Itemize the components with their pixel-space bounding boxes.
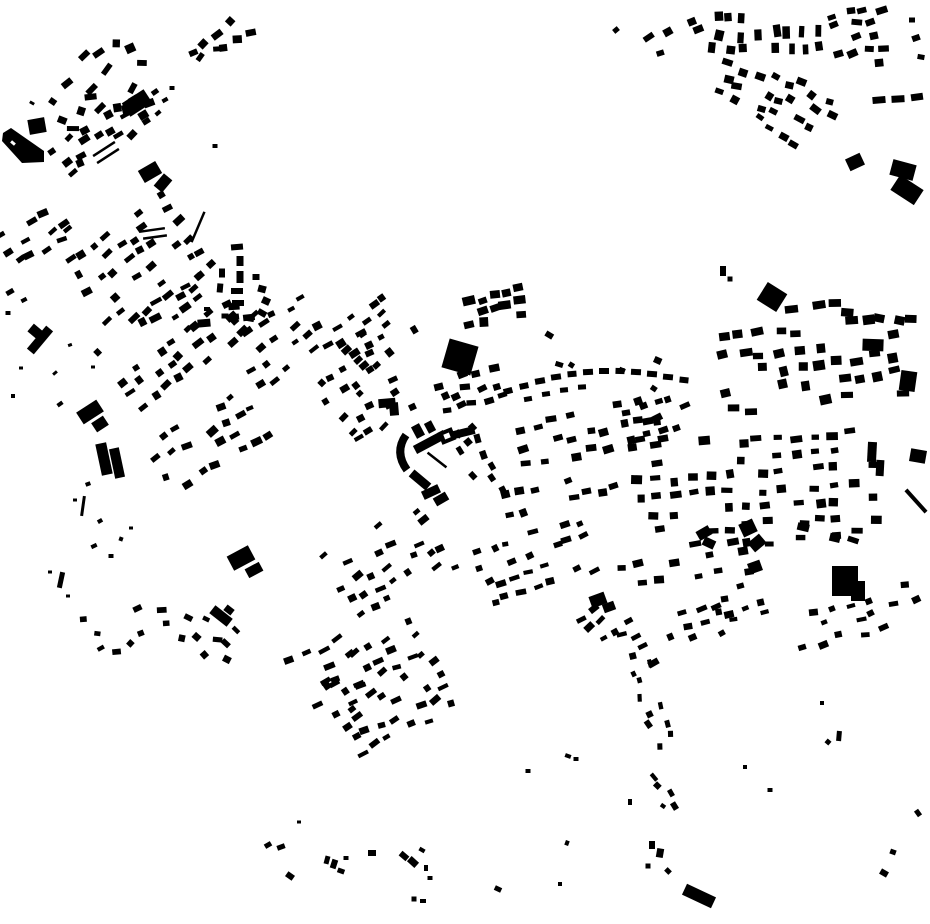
building [181,441,193,450]
building [737,32,744,43]
building [600,635,608,642]
building [846,7,855,14]
building [785,94,796,105]
building [662,26,673,37]
building [909,18,915,23]
building [815,515,825,522]
building [91,416,109,433]
building [725,527,735,534]
building [698,436,710,446]
building [911,93,924,102]
building [245,562,264,578]
building [369,738,381,749]
building [411,423,425,439]
building [566,436,577,444]
building [636,677,642,684]
building [347,593,357,603]
building [95,442,112,476]
building [633,416,643,424]
building [339,412,349,422]
building [578,531,589,540]
building [521,460,531,466]
building [429,694,441,706]
building [103,109,114,120]
building [229,313,240,320]
building [624,617,634,625]
building [390,387,400,397]
building [677,609,687,616]
building [891,95,904,103]
building [409,469,432,490]
building [154,110,161,117]
building [463,320,474,329]
building [553,434,564,442]
building [182,362,194,373]
building [377,309,386,318]
building [741,605,749,612]
building [312,700,324,709]
building [756,598,764,606]
building [811,448,819,454]
building [202,616,210,623]
building [463,437,473,447]
building [163,620,170,626]
building [731,82,742,90]
building [707,471,717,480]
building [612,400,622,408]
building [812,435,820,440]
building [451,392,461,402]
building [319,551,328,559]
building [644,719,653,729]
building [245,28,256,36]
building [347,313,355,321]
building [705,551,714,558]
building [670,490,682,498]
building [385,540,397,549]
building [682,884,716,908]
building [773,348,785,359]
building [688,473,698,480]
building [187,253,195,261]
building [827,110,839,121]
building [738,518,758,537]
building [269,376,280,386]
building [102,248,113,259]
building [732,329,743,338]
building [363,426,373,436]
building [824,738,831,745]
building [337,867,345,874]
building [571,452,582,461]
building [720,388,731,398]
building [774,435,782,440]
building [857,7,867,15]
building [356,414,366,423]
building [471,370,481,378]
building [170,424,180,432]
building [753,353,763,360]
building [109,554,114,558]
building [850,357,864,367]
building [222,314,229,319]
building [145,261,157,272]
building [167,447,176,456]
building [516,311,526,318]
building [564,840,569,846]
building [170,86,175,90]
building [479,450,488,460]
building [876,460,885,476]
building [559,520,570,529]
building [389,715,400,725]
building [905,315,917,323]
building [416,700,428,709]
building [845,153,865,172]
building [617,565,625,571]
building [726,469,735,479]
building [839,373,852,382]
building [568,361,575,368]
building [128,312,141,325]
building [792,450,803,460]
building [75,249,86,260]
building [540,562,549,568]
building [566,411,575,419]
building [143,234,167,240]
building [338,365,346,373]
building [864,597,872,605]
building [79,125,90,136]
building [861,632,870,637]
building [841,392,853,398]
building [374,521,383,529]
building [598,488,608,497]
building [375,585,387,593]
building [801,381,811,392]
building [456,446,465,456]
building [126,639,135,648]
building [157,607,167,613]
building [524,396,533,402]
building [642,430,650,437]
building [127,82,137,94]
building [26,216,38,226]
building [330,859,338,869]
building [572,564,581,572]
building [52,370,58,376]
building [179,301,192,313]
building [650,773,659,782]
building [217,283,224,292]
building [490,290,501,299]
building [645,710,653,718]
building [771,72,781,81]
building [657,743,662,750]
building [721,58,733,67]
building [763,517,773,524]
building [370,602,380,611]
building [784,305,798,314]
building [790,330,801,337]
building [816,343,826,353]
building [235,410,247,420]
building [57,572,65,589]
building [94,631,101,636]
building [651,459,663,467]
building [124,42,136,54]
building [897,390,909,396]
building [157,279,166,287]
building [80,496,86,516]
building [668,731,673,737]
building [183,613,193,622]
building [451,564,459,571]
building [851,581,865,601]
building-footprints-canvas [0,0,930,924]
building [134,209,144,218]
building [290,321,301,332]
building [232,300,244,306]
building [413,508,421,516]
building [325,374,334,382]
building [772,452,781,458]
building [221,418,230,427]
building [200,650,210,660]
building [818,640,829,650]
building [456,400,467,409]
building [459,383,470,390]
building [729,94,740,105]
building [99,231,110,242]
building [132,604,142,613]
building [359,590,369,600]
building [408,403,417,412]
building [364,349,374,358]
building [851,32,862,41]
building [827,14,836,21]
building [803,44,809,54]
building [745,408,757,415]
building [90,543,97,549]
building [134,375,144,385]
building [867,442,877,462]
building [75,158,84,168]
building [377,667,388,677]
building [739,44,747,53]
building [475,565,483,573]
building [145,238,156,249]
building [168,360,178,369]
building [472,548,482,556]
building [349,428,358,437]
building [653,417,661,426]
building [738,13,745,23]
building [3,247,14,257]
building [648,512,658,520]
building [92,47,105,59]
building [351,711,363,722]
building [773,468,783,475]
building [878,623,889,632]
building [390,696,402,705]
building [534,583,544,590]
building [68,343,73,347]
building [612,26,620,34]
building [790,435,803,443]
building [364,340,374,350]
building [773,24,782,37]
building [161,97,168,103]
building [815,25,821,37]
building [81,286,93,297]
building [112,39,120,47]
building [578,384,586,389]
building [576,520,584,527]
building [696,604,708,613]
building [246,366,256,374]
building [750,435,761,442]
building [261,296,271,306]
building [211,29,224,41]
building [533,424,543,431]
building [542,391,551,397]
building [650,385,658,393]
building [670,801,679,811]
building [581,487,591,495]
building [545,577,555,586]
building [258,318,270,328]
building [771,43,779,53]
building [287,306,295,313]
building [484,397,495,406]
building [664,867,672,875]
building [357,610,366,618]
building [637,642,648,650]
building [728,277,733,282]
building [785,81,794,89]
building [175,291,186,301]
building [637,694,641,702]
building [412,631,420,639]
building [909,448,927,464]
building [417,514,429,526]
building [555,361,564,368]
building [116,307,125,316]
building [190,211,205,242]
building [93,348,102,357]
building [683,623,693,631]
building [362,317,372,326]
building [173,372,183,382]
building [443,407,452,413]
building [112,649,121,655]
building [793,114,805,124]
building [441,391,451,401]
building [911,595,921,605]
building [816,498,827,508]
building [738,68,749,78]
building [526,769,531,773]
building [250,436,263,447]
building [829,498,839,507]
building [138,161,162,183]
building [477,306,489,317]
building [809,486,819,492]
building [513,295,526,305]
building [155,368,165,377]
building [527,528,538,535]
building [97,645,105,652]
building [869,31,879,40]
building [342,722,353,732]
building [365,688,377,699]
building [113,103,122,113]
building [721,595,729,602]
building [437,670,446,679]
building [750,327,764,337]
building [302,329,313,339]
building [721,488,732,493]
building [692,24,704,34]
building [862,314,875,325]
building [649,841,655,849]
building [377,722,385,729]
building [560,535,572,544]
building [714,29,725,41]
building [608,482,619,490]
building [743,765,747,769]
building [664,395,672,403]
building [782,26,790,39]
building [576,615,587,624]
building [477,384,488,393]
building [420,899,426,903]
building [262,360,271,369]
building [778,132,789,143]
building [804,123,814,132]
building [515,426,525,435]
building [615,368,624,374]
building [20,237,30,245]
building [705,486,715,495]
building [67,126,79,131]
building [829,299,842,307]
building [431,562,442,572]
building [369,299,380,310]
building [647,371,657,378]
building [501,288,511,297]
building [417,651,425,659]
building [739,348,753,358]
building [630,671,637,678]
building [544,330,554,339]
building [514,486,525,495]
building [84,93,97,100]
building [834,631,842,639]
building [178,634,186,642]
building [656,49,665,57]
building [406,719,416,728]
building [653,356,662,365]
building [342,558,353,566]
building [844,427,855,434]
building [796,535,806,540]
building [672,424,681,432]
building [523,569,533,575]
building [851,19,862,26]
building [777,378,788,389]
